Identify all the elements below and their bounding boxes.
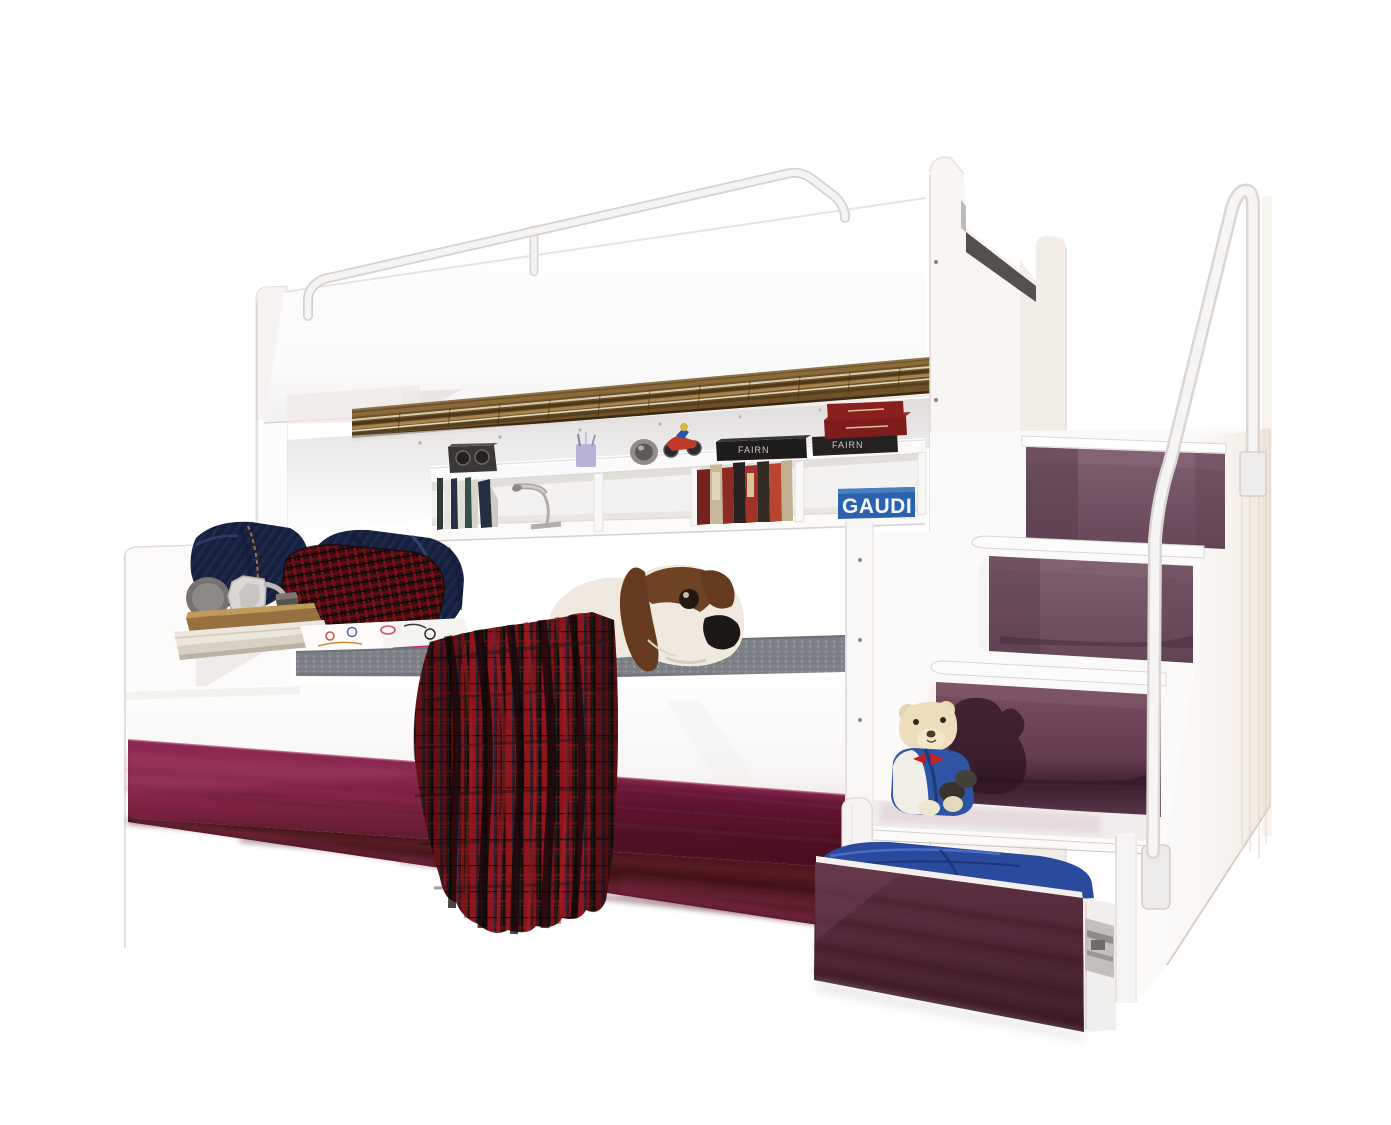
svg-text:GAUDI: GAUDI [842, 495, 912, 518]
svg-text:FAIRN: FAIRN [738, 445, 770, 455]
svg-text:FAIRN: FAIRN [832, 440, 864, 450]
